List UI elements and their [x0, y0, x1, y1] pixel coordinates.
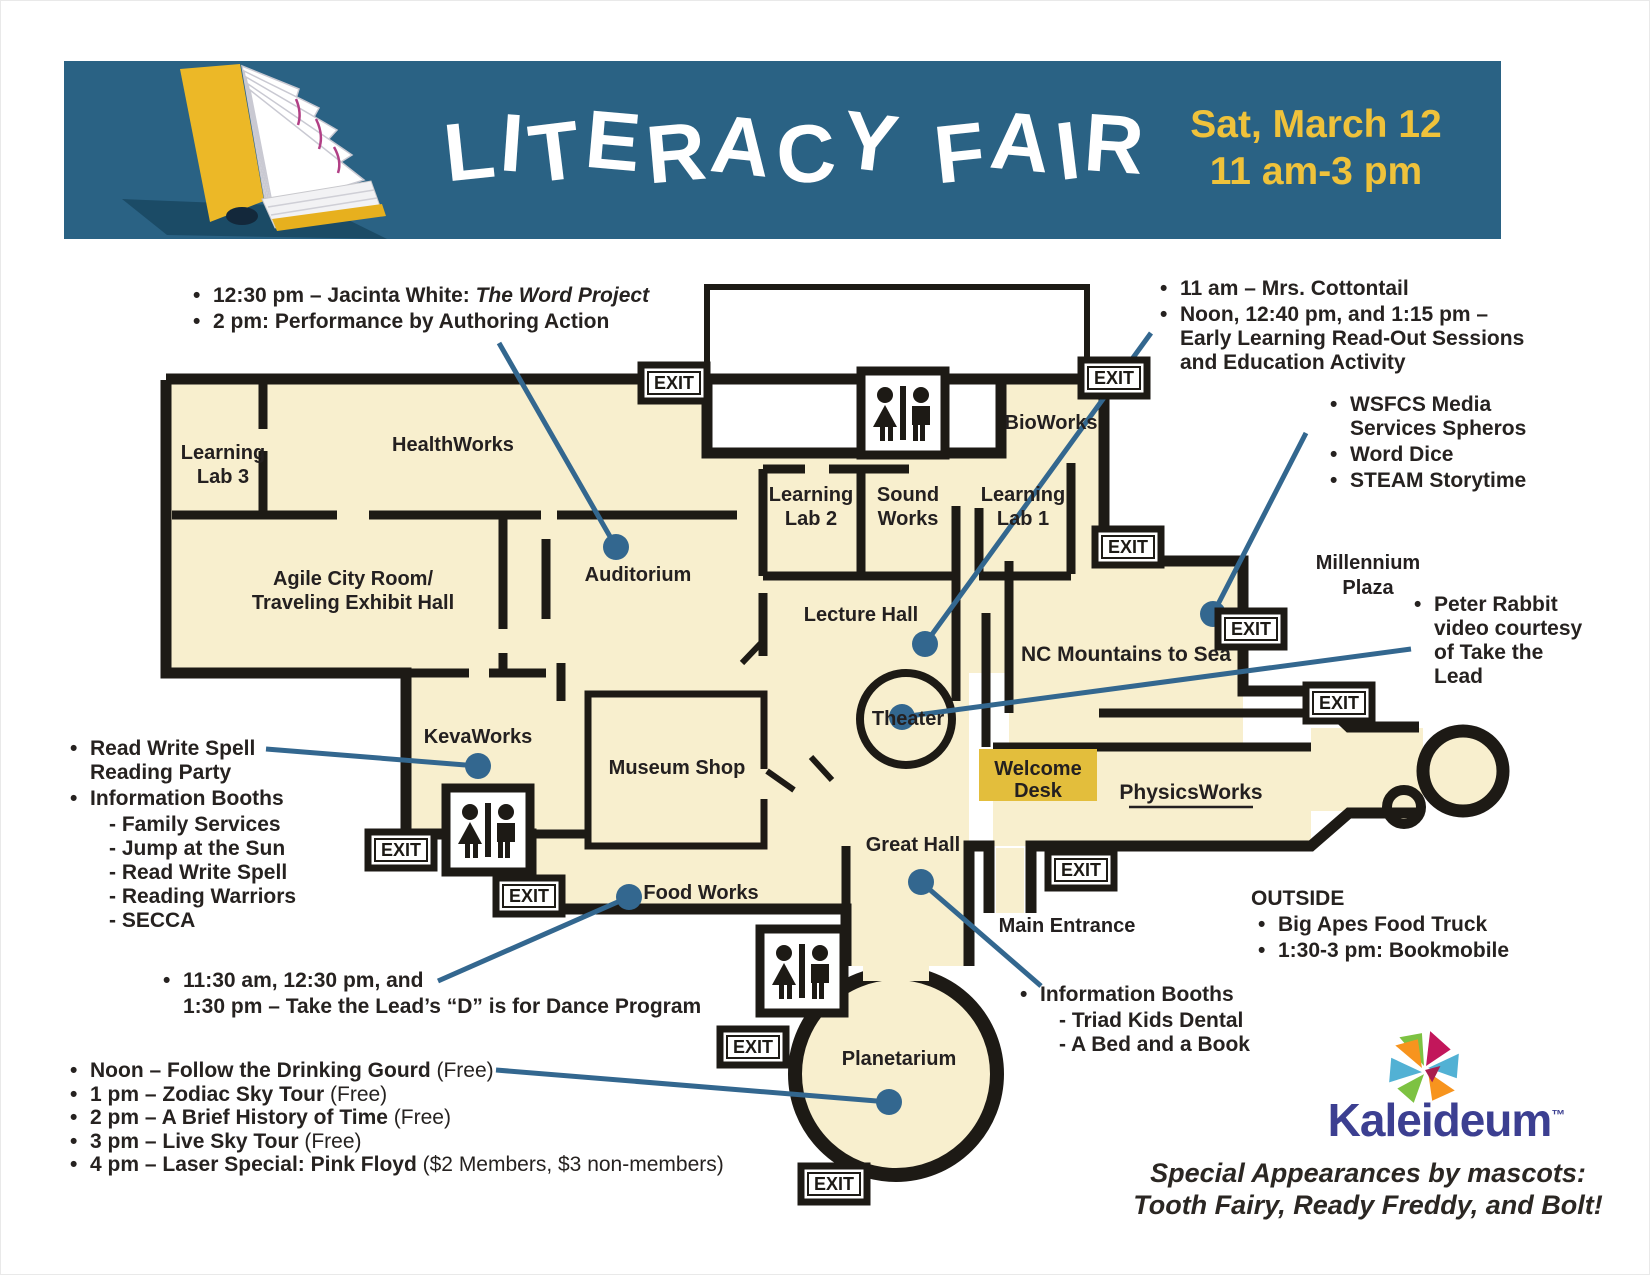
- room-label-theater: Theater: [872, 708, 944, 730]
- annotation-subitem: - Reading Warriors: [63, 885, 315, 909]
- annotation-subitem: - A Bed and a Book: [1013, 1033, 1283, 1057]
- svg-text:EXIT: EXIT: [1094, 368, 1134, 388]
- room-label-auditorium: Auditorium: [585, 564, 692, 586]
- exit-sign: EXIT: [641, 365, 707, 401]
- annotation-item: 1:30-3 pm: Bookmobile: [1251, 939, 1541, 963]
- svg-text:EXIT: EXIT: [509, 886, 549, 906]
- svg-text:EXIT: EXIT: [814, 1174, 854, 1194]
- svg-text:EXIT: EXIT: [1061, 860, 1101, 880]
- svg-text:EXIT: EXIT: [1319, 693, 1359, 713]
- exit-sign: EXIT: [1048, 852, 1114, 888]
- literacy-fair-flyer: EXIT EXIT EXIT EXIT EXIT EXIT EXIT EXIT …: [0, 0, 1650, 1275]
- annotation-item: 11 am – Mrs. Cottontail: [1153, 277, 1543, 301]
- annotation-item: 4 pm – Laser Special: Pink Floyd ($2 Mem…: [63, 1153, 753, 1177]
- title-letter: A: [986, 81, 1055, 206]
- svg-text:EXIT: EXIT: [654, 373, 694, 393]
- annotation-nc-mountains-events: WSFCS Media Services Spheros Word Dice S…: [1323, 393, 1575, 495]
- title-letter: T: [523, 90, 587, 215]
- room-label-learning-lab-1: Lab 1: [997, 508, 1049, 530]
- annotation-item: 2 pm – A Brief History of Time (Free): [63, 1106, 753, 1130]
- room-label-sound-works: Sound: [877, 484, 939, 506]
- restroom-icon: [760, 929, 844, 1013]
- title-letter: R: [1081, 83, 1148, 207]
- room-label-millennium-plaza: Millennium: [1316, 552, 1420, 574]
- exit-sign: EXIT: [1218, 611, 1284, 647]
- exit-sign: EXIT: [496, 878, 562, 914]
- annotation-subitem: - SECCA: [63, 909, 315, 933]
- annotation-planetarium-events: Noon – Follow the Drinking Gourd (Free) …: [63, 1059, 753, 1177]
- annotation-subitem: - Triad Kids Dental: [1013, 1009, 1283, 1033]
- annotation-item: STEAM Storytime: [1323, 469, 1575, 493]
- room-label-learning-lab-2: Learning: [769, 484, 853, 506]
- title-letter: A: [705, 84, 776, 210]
- mascots-line1: Special Appearances by mascots:: [1093, 1157, 1643, 1189]
- room-label-physicsworks: PhysicsWorks: [1119, 781, 1262, 804]
- book-illustration: [92, 59, 437, 245]
- svg-text:EXIT: EXIT: [381, 840, 421, 860]
- room-label-healthworks: HealthWorks: [392, 434, 514, 456]
- annotation-auditorium-events: 12:30 pm – Jacinta White: The Word Proje…: [186, 284, 666, 336]
- annotation-item: Noon, 12:40 pm, and 1:15 pm – Early Lear…: [1153, 303, 1543, 375]
- title-letter: C: [773, 93, 840, 217]
- round-lobby-knob: [1387, 790, 1421, 824]
- annotation-kevaworks-events: Read Write Spell Reading Party Informati…: [63, 737, 315, 933]
- annotation-item: 11:30 am, 12:30 pm, and: [156, 969, 736, 993]
- room-label-kevaworks: KevaWorks: [424, 726, 533, 748]
- room-label-learning-lab-3: Learning: [181, 442, 265, 464]
- welcome-desk-label: Desk: [1014, 780, 1063, 802]
- room-label-learning-lab-1: Learning: [981, 484, 1065, 506]
- room-label-nc-mountains: NC Mountains to Sea: [1021, 643, 1231, 666]
- welcome-desk-label: Welcome: [994, 758, 1081, 780]
- exit-sign: EXIT: [368, 832, 434, 868]
- annotation-item: Information Booths: [63, 787, 315, 811]
- annotation-item: Word Dice: [1323, 443, 1575, 467]
- mascots-line2: Tooth Fairy, Ready Freddy, and Bolt!: [1093, 1189, 1643, 1221]
- title-letter: [902, 89, 928, 209]
- banner-date: Sat, March 12 11 am-3 pm: [1186, 101, 1446, 195]
- room-label-agile-city: Traveling Exhibit Hall: [252, 592, 454, 614]
- room-label-millennium-plaza: Plaza: [1342, 577, 1394, 599]
- annotation-item: 3 pm – Live Sky Tour (Free): [63, 1130, 753, 1154]
- annotation-theater-video: Peter Rabbit video courtesy of Take the …: [1407, 593, 1597, 691]
- exit-sign: EXIT: [1095, 529, 1161, 565]
- svg-text:EXIT: EXIT: [1231, 619, 1271, 639]
- annotation-item: Information Booths: [1013, 983, 1283, 1007]
- planetarium-opening: [863, 953, 929, 981]
- room-label-sound-works: Works: [878, 508, 939, 530]
- banner-date-line2: 11 am-3 pm: [1186, 148, 1446, 195]
- room-label-food-works: Food Works: [643, 882, 758, 904]
- banner-date-line1: Sat, March 12: [1186, 101, 1446, 148]
- annotation-item: Big Apes Food Truck: [1251, 913, 1541, 937]
- annotation-item: Peter Rabbit video courtesy of Take the …: [1407, 593, 1597, 689]
- title-letter: E: [581, 80, 646, 204]
- annotation-item: Read Write Spell Reading Party: [63, 737, 315, 785]
- annotation-item: 1 pm – Zodiac Sky Tour (Free): [63, 1083, 753, 1107]
- trademark-symbol: ™: [1551, 1107, 1564, 1123]
- room-label-lecture-hall: Lecture Hall: [804, 604, 918, 626]
- restroom-icon: [446, 788, 530, 872]
- room-label-agile-city: Agile City Room/: [273, 568, 433, 590]
- exit-sign: EXIT: [801, 1166, 867, 1202]
- room-label-great-hall: Great Hall: [866, 834, 960, 856]
- annotation-great-hall-booths: Information Booths - Triad Kids Dental -…: [1013, 983, 1283, 1057]
- svg-text:EXIT: EXIT: [1108, 537, 1148, 557]
- annotation-item: 1:30 pm – Take the Lead’s “D” is for Dan…: [156, 995, 736, 1019]
- mascots-note: Special Appearances by mascots: Tooth Fa…: [1093, 1157, 1643, 1221]
- annotation-theater-events: 11 am – Mrs. Cottontail Noon, 12:40 pm, …: [1153, 277, 1543, 377]
- annotation-item: 2 pm: Performance by Authoring Action: [186, 310, 666, 334]
- annotation-subitem: - Read Write Spell: [63, 861, 315, 885]
- title-letter: F: [929, 92, 991, 217]
- title-letter: R: [641, 92, 710, 217]
- kaleideum-wordmark: Kaleideum™: [1301, 1093, 1591, 1147]
- annotation-subitem: - Family Services: [63, 813, 315, 837]
- banner: LITERACY FAIR Sat, March 12 11 am-3 pm: [64, 61, 1501, 239]
- annotation-food-works-events: 11:30 am, 12:30 pm, and 1:30 pm – Take t…: [156, 969, 736, 1019]
- room-label-bioworks: BioWorks: [1005, 412, 1098, 434]
- restroom-icon: [861, 371, 945, 455]
- title-letter: L: [438, 90, 500, 215]
- annotation-subitem: - Jump at the Sun: [63, 837, 315, 861]
- annotation-item: WSFCS Media Services Spheros: [1323, 393, 1575, 441]
- room-label-planetarium: Planetarium: [842, 1048, 956, 1070]
- round-lobby: [1423, 731, 1503, 811]
- room-label-learning-lab-2: Lab 2: [785, 508, 837, 530]
- banner-title: LITERACY FAIR: [404, 89, 1184, 219]
- svg-text:EXIT: EXIT: [733, 1037, 773, 1057]
- room-label-museum-shop: Museum Shop: [609, 757, 746, 779]
- exit-sign: EXIT: [1306, 685, 1372, 721]
- title-letter: Y: [835, 80, 904, 206]
- annotation-item: 12:30 pm – Jacinta White: The Word Proje…: [186, 284, 666, 308]
- outside-heading: OUTSIDE: [1251, 887, 1541, 911]
- annotation-item: Noon – Follow the Drinking Gourd (Free): [63, 1059, 753, 1083]
- room-label-learning-lab-3: Lab 3: [197, 466, 249, 488]
- annotation-outside: OUTSIDE Big Apes Food Truck 1:30-3 pm: B…: [1251, 887, 1541, 965]
- exit-sign: EXIT: [1081, 360, 1147, 396]
- room-label-main-entrance: Main Entrance: [999, 915, 1136, 937]
